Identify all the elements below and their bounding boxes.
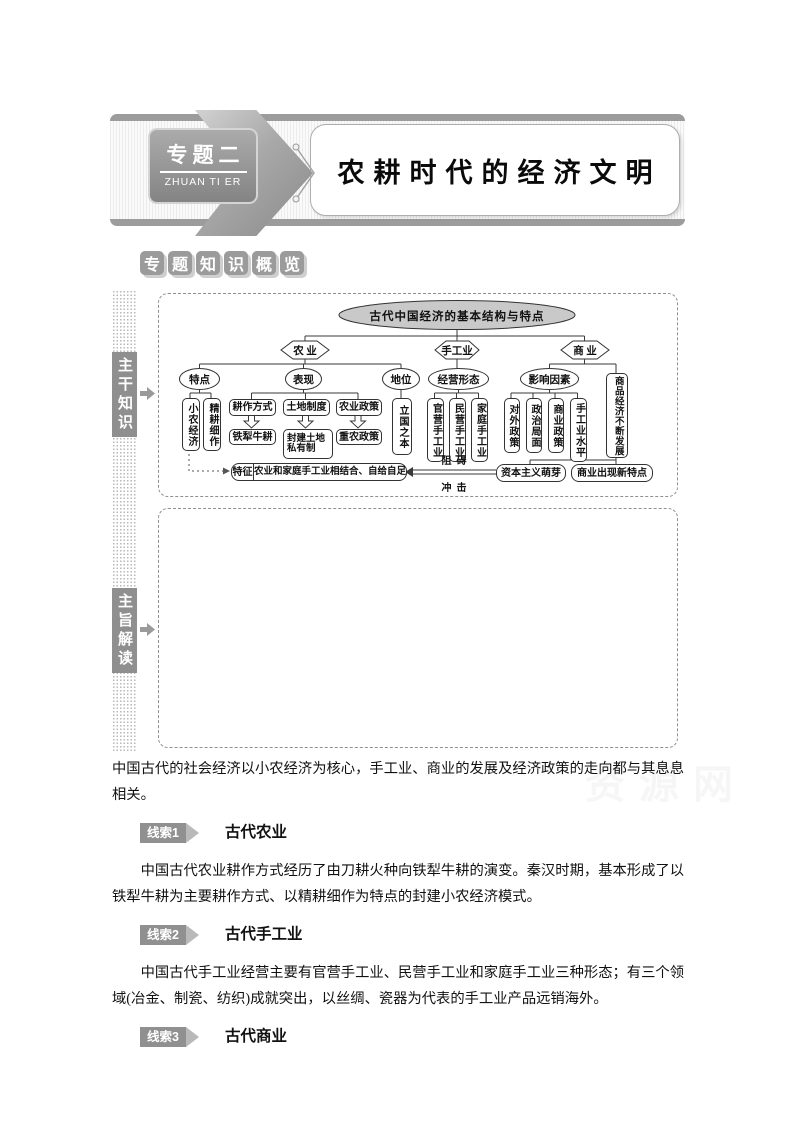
arrow-right-icon — [139, 622, 156, 642]
section-label-char: 识 — [224, 251, 248, 275]
characteristics-text: 农业和家庭手工业相结合、自给自足 — [254, 467, 406, 477]
flowchart-node-manifestation: 表现 — [281, 369, 326, 389]
watermark: 资源网 — [585, 752, 747, 810]
flowchart-node-feudal-land-ownership: 封建土地私有制 — [283, 429, 333, 459]
banner-top-bar — [110, 114, 685, 121]
flowchart-node-foundation-of-state: 立国之本 — [392, 398, 412, 455]
flowchart-node-political-situation: 政治局面 — [526, 398, 542, 453]
flowchart-node-commodity-economy-growth: 商品经济不断发展 — [606, 373, 628, 458]
clue-badge-1: 线索1 — [140, 823, 186, 843]
flowchart-node-farming-method: 耕作方式 — [229, 399, 276, 416]
section-label-char: 知 — [196, 251, 220, 275]
flowchart-node-iron-plow: 铁犁牛耕 — [229, 429, 276, 445]
section-label-char: 览 — [280, 251, 304, 275]
flowchart-node-agri-policy: 农业政策 — [336, 399, 382, 416]
topic-badge: 专题二 ZHUAN TI ER — [148, 128, 258, 204]
clue-title-3: 古代商业 — [225, 1024, 287, 1050]
topic-badge-subtitle: ZHUAN TI ER — [165, 176, 242, 188]
flowchart-node-pro-agri-policy: 重农政策 — [336, 429, 382, 445]
flowchart-node-capitalism-sprout: 资本主义萌芽 — [496, 464, 566, 482]
clue-row-2: 线索2 古代手工业 — [140, 922, 684, 948]
flowchart-label-obstruct: 阻 碍 — [424, 452, 484, 467]
flowchart-node-land-system: 土地制度 — [283, 399, 330, 416]
clue-badge-3: 线索3 — [140, 1027, 186, 1047]
clue-arrow-icon — [186, 1027, 199, 1047]
arrow-right-icon — [139, 386, 156, 406]
clue-arrow-icon — [186, 823, 199, 843]
flowchart-node-small-farmer-economy: 小农经济 — [182, 398, 200, 451]
flowchart-node-commerce-policy: 商业政策 — [548, 398, 564, 453]
chapter-title-box: 农耕时代的经济文明 — [310, 124, 680, 216]
flowchart-label-impact: 冲 击 — [424, 479, 484, 494]
knowledge-overview-panel: 古代中国经济的基本结构与特点 农 业 手工业 商 业 特点 表现 地位 经营形态… — [158, 293, 678, 497]
flowchart-hex-agriculture: 农 业 — [281, 341, 329, 359]
clue-text-2: 中国古代手工业经营主要有官营手工业、民营手工业和家庭手工业三种形态；有三个领域(… — [112, 960, 684, 1012]
section-label-char: 概 — [252, 251, 276, 275]
section-label-char: 题 — [168, 251, 192, 275]
clue-row-3: 线索3 古代商业 — [140, 1024, 684, 1050]
flowchart-node-intensive-farming: 精耕细作 — [203, 398, 221, 451]
chevron-deco-icon — [290, 140, 322, 211]
banner-bottom-bar — [110, 219, 685, 226]
sidebar-label-theme-interpretation: 主旨解读 — [112, 588, 137, 673]
clue-badge-2: 线索2 — [140, 925, 186, 945]
flowchart-root: 古代中国经济的基本结构与特点 — [339, 302, 575, 329]
flowchart-node-operation-forms: 经营形态 — [427, 369, 490, 389]
interpretation-panel — [158, 508, 678, 748]
clue-title-1: 古代农业 — [225, 820, 287, 846]
flowchart-node-handicraft-level: 手工业水平 — [570, 398, 587, 462]
textbook-page: 农耕时代的经济文明 专题二 ZHUAN TI ER 专 题 知 识 概 览 主干… — [0, 0, 794, 1123]
flowchart-node-foreign-policy: 对外政策 — [504, 398, 520, 453]
chapter-title: 农耕时代的经济文明 — [329, 151, 662, 190]
flowchart-node-features: 特点 — [177, 369, 222, 389]
clue-title-2: 古代手工业 — [225, 922, 303, 948]
flowchart-node-new-commerce-features: 商业出现新特点 — [571, 464, 653, 482]
characteristics-label: 特征 — [232, 464, 254, 480]
header-banner: 农耕时代的经济文明 专题二 ZHUAN TI ER — [110, 114, 685, 226]
flowchart-node-characteristics: 特征 农业和家庭手工业相结合、自给自足 — [231, 463, 407, 481]
clue-row-1: 线索1 古代农业 — [140, 820, 684, 846]
sidebar-label-main-knowledge: 主干知识 — [112, 352, 137, 437]
topic-badge-title: 专题二 — [160, 144, 247, 172]
flowchart-node-influence-factors: 影响因素 — [519, 369, 580, 389]
flowchart-hex-commerce: 商 业 — [561, 341, 609, 359]
clue-text-1: 中国古代农业耕作方式经历了由刀耕火种向铁犁牛耕的演变。秦汉时期，基本形成了以铁犁… — [112, 858, 684, 910]
flowchart-hex-handicraft: 手工业 — [435, 341, 479, 359]
flowchart-node-status: 地位 — [379, 369, 423, 389]
clue-arrow-icon — [186, 925, 199, 945]
section-label: 专 题 知 识 概 览 — [140, 251, 304, 275]
section-label-char: 专 — [140, 251, 164, 275]
